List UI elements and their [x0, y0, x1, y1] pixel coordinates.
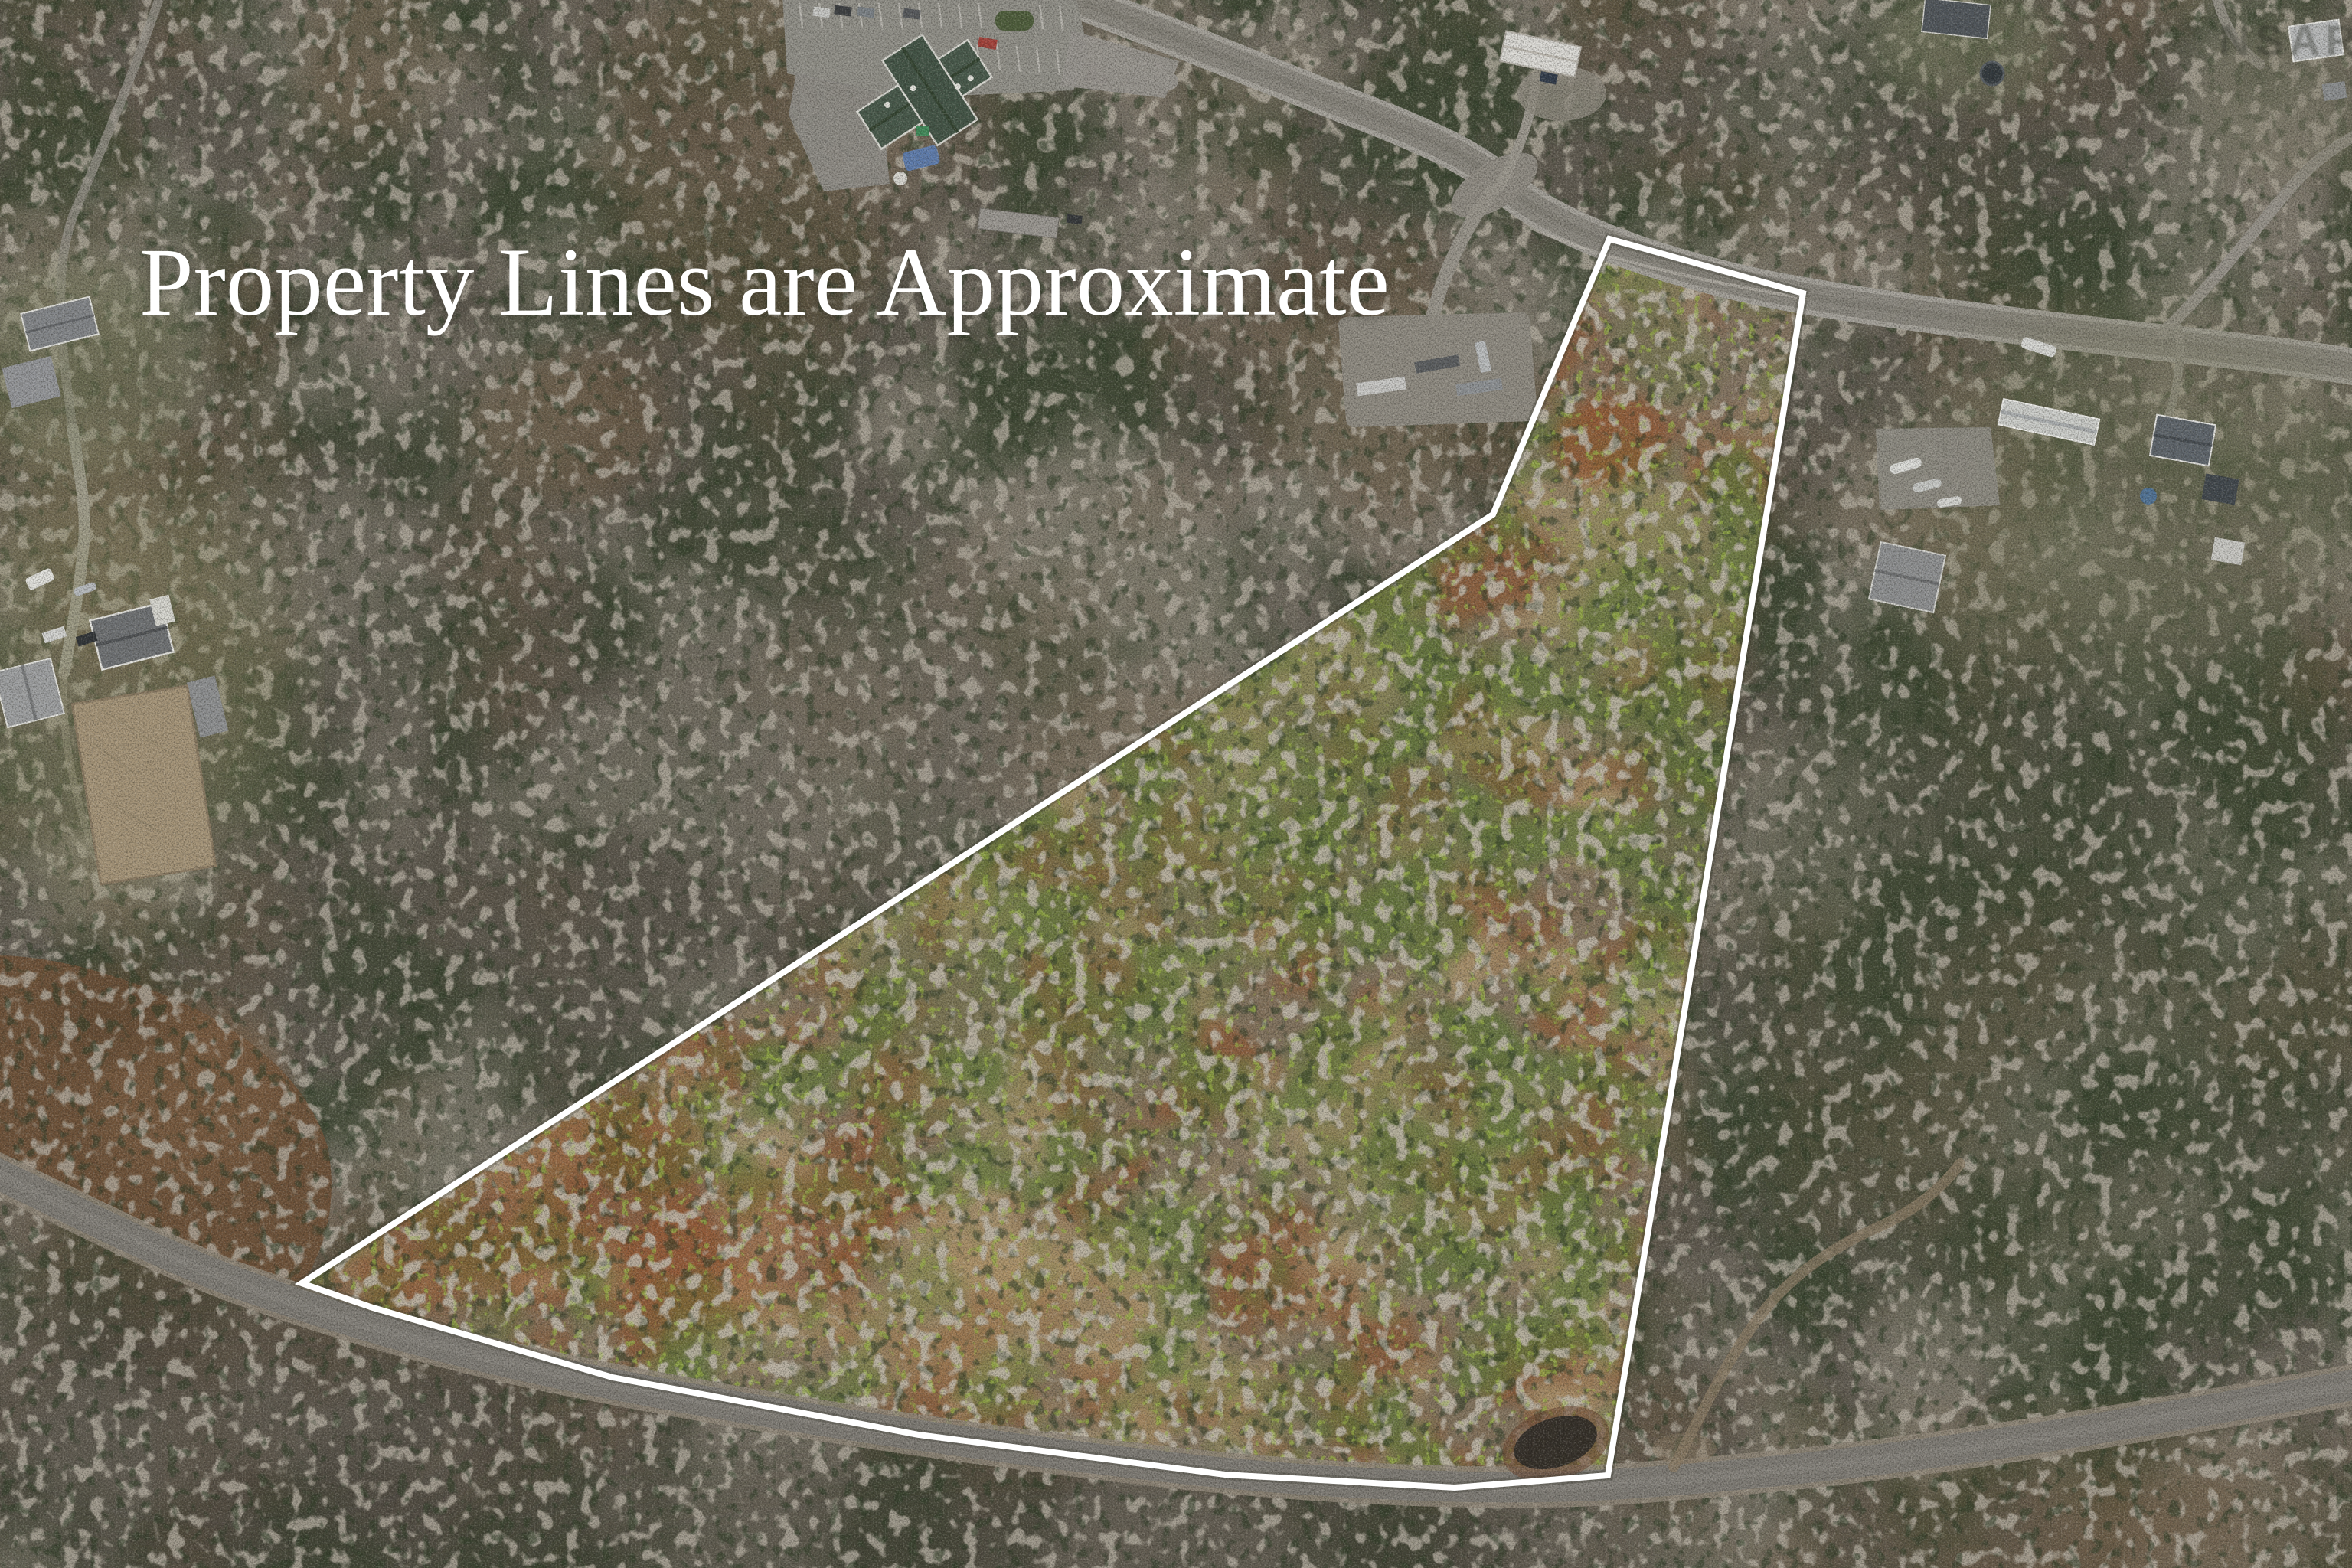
- aerial-photo: Property Lines are Approximate NSAR: [0, 0, 2352, 1568]
- watermark-text: NSAR: [2219, 15, 2352, 65]
- caption-text: Property Lines are Approximate: [139, 234, 1390, 332]
